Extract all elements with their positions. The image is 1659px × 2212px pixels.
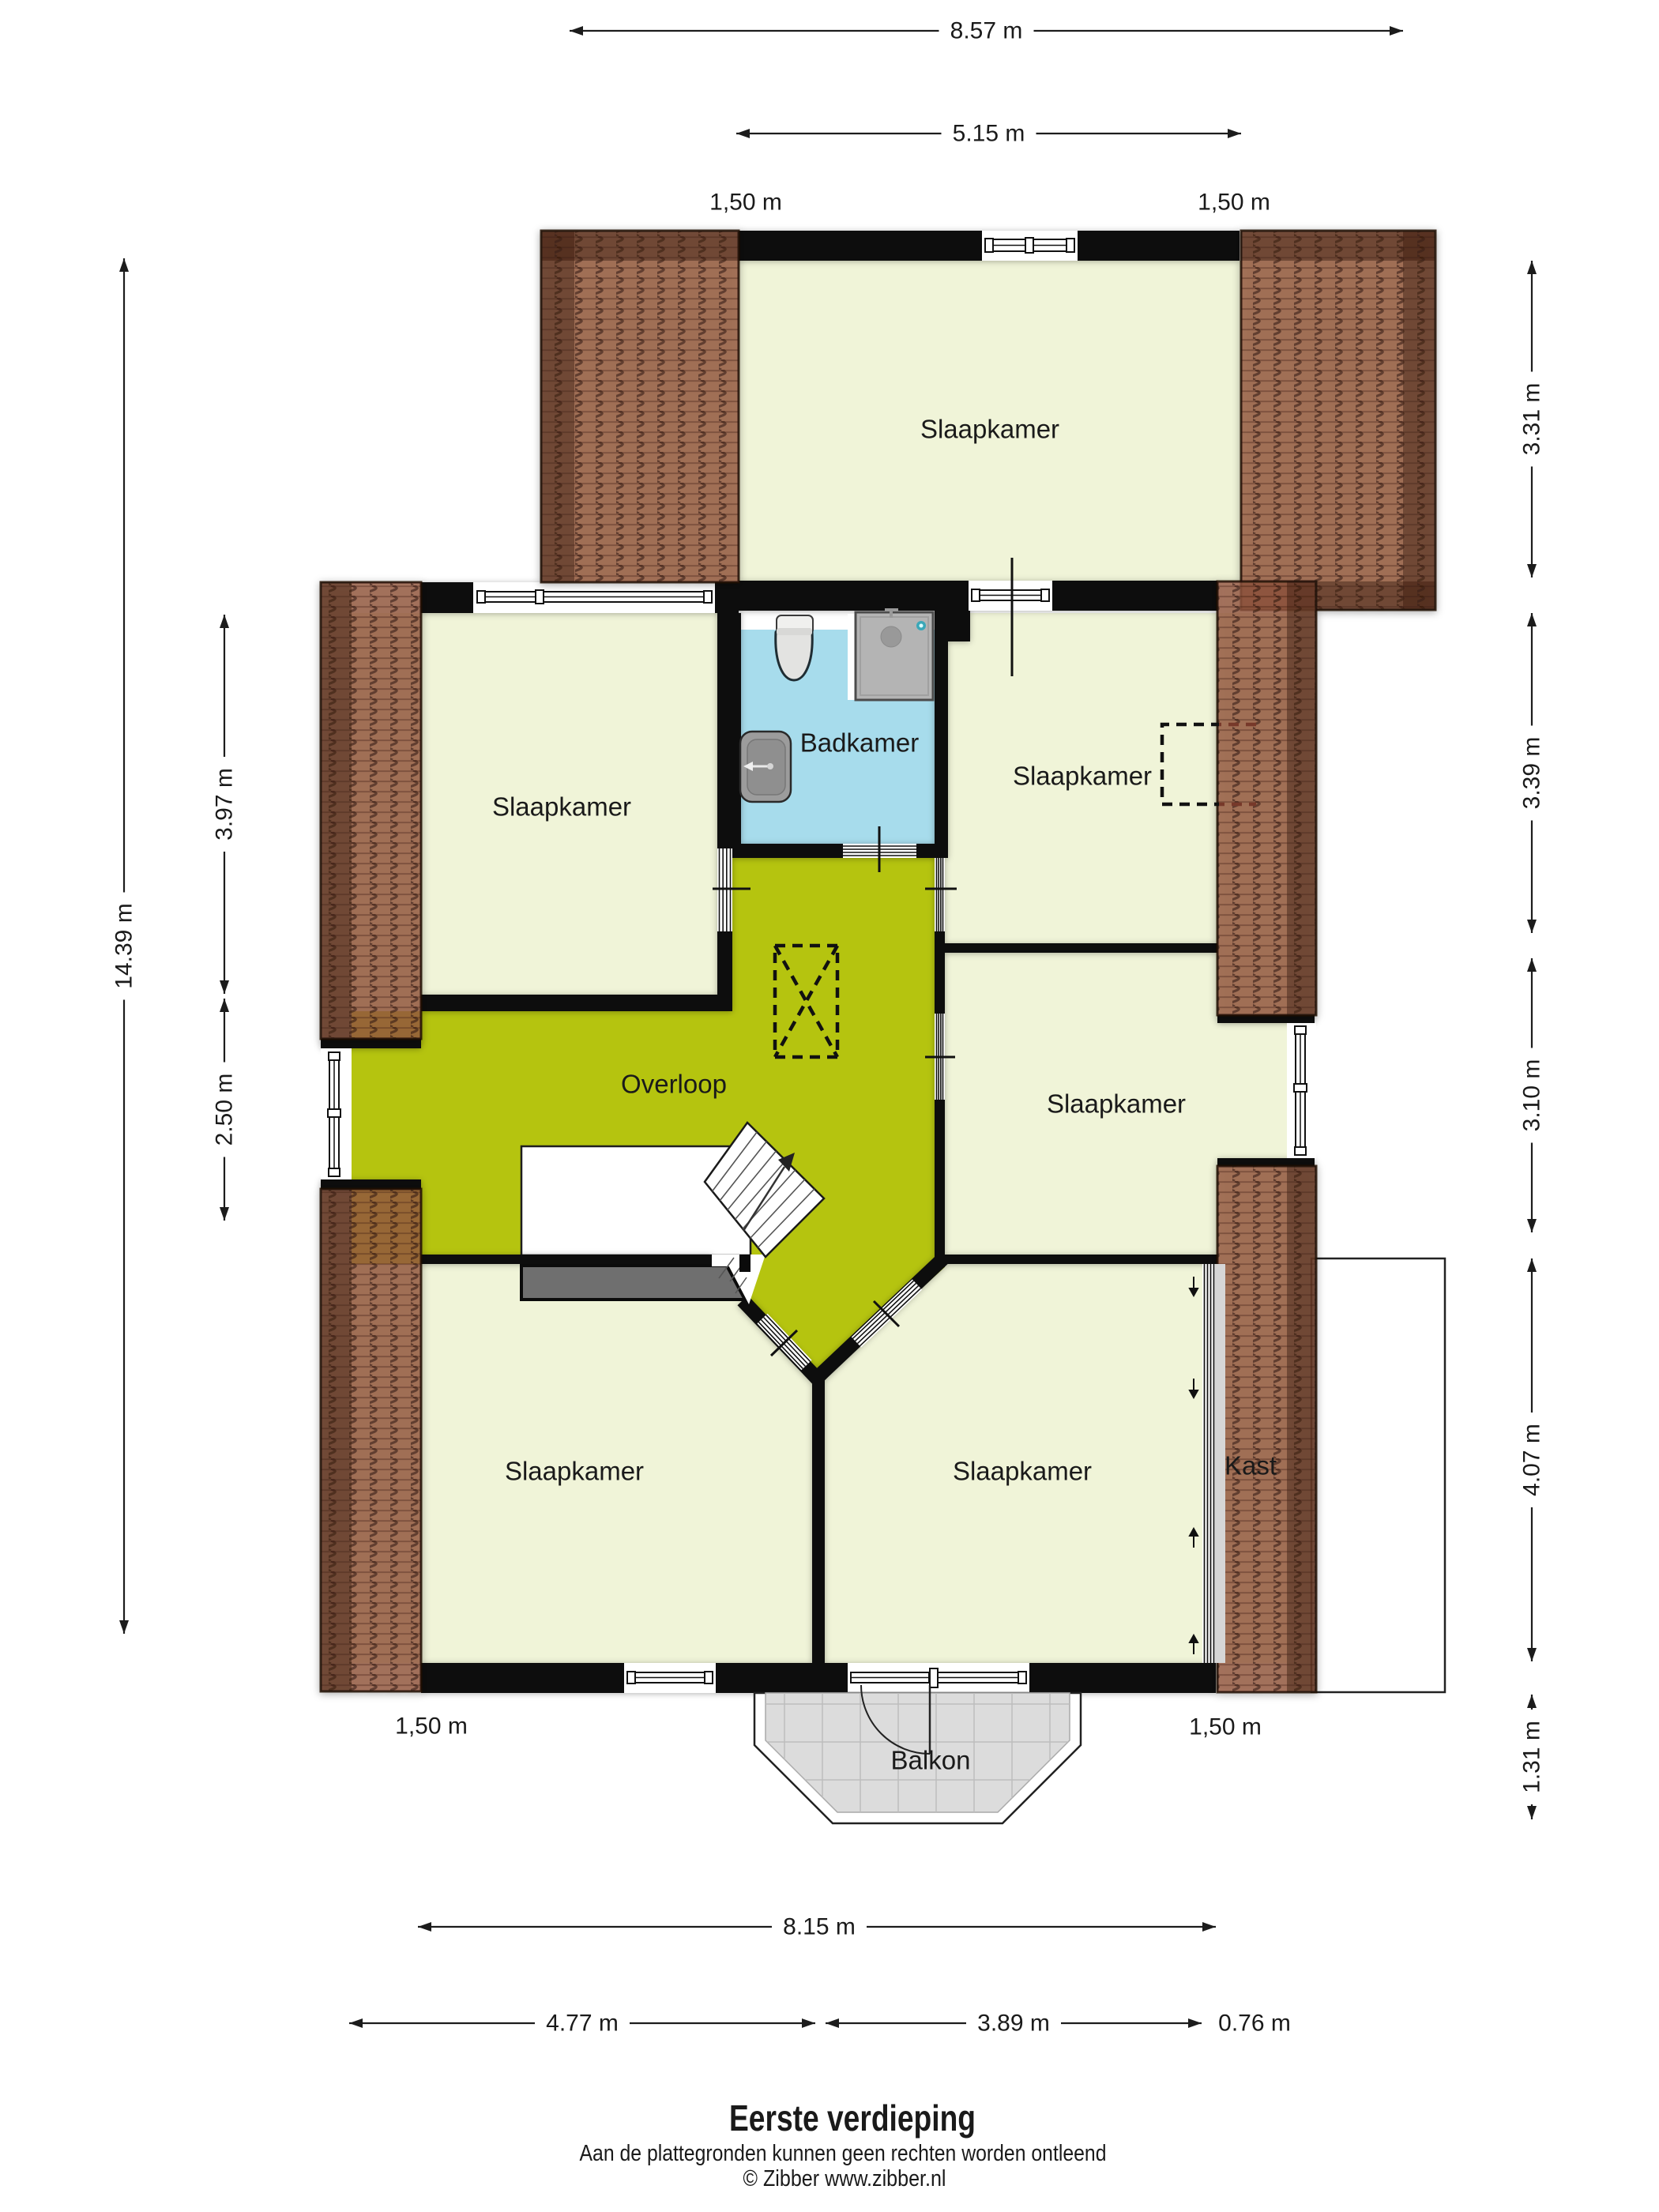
svg-text:3.89 m: 3.89 m [977, 2011, 1050, 2037]
svg-text:3.31 m: 3.31 m [1519, 383, 1545, 456]
svg-text:Slaapkamer: Slaapkamer [1013, 762, 1152, 791]
svg-text:Kast: Kast [1224, 1451, 1277, 1480]
svg-text:1.31 m: 1.31 m [1519, 1721, 1545, 1793]
svg-text:0.76 m: 0.76 m [1218, 2011, 1291, 2037]
svg-text:3.39 m: 3.39 m [1519, 737, 1545, 810]
svg-text:Aan de plattegronden kunnen ge: Aan de plattegronden kunnen geen rechten… [580, 2141, 1107, 2166]
svg-text:Overloop: Overloop [621, 1070, 727, 1099]
svg-text:Slaapkamer: Slaapkamer [505, 1457, 644, 1486]
svg-text:4.77 m: 4.77 m [546, 2011, 619, 2037]
svg-text:2.50 m: 2.50 m [212, 1074, 238, 1146]
svg-text:1,50 m: 1,50 m [1198, 190, 1270, 216]
svg-text:Slaapkamer: Slaapkamer [492, 792, 631, 822]
svg-text:14.39 m: 14.39 m [111, 903, 137, 988]
svg-text:5.15 m: 5.15 m [953, 121, 1025, 147]
svg-text:8.15 m: 8.15 m [783, 1914, 856, 1940]
svg-text:3.10 m: 3.10 m [1519, 1059, 1545, 1132]
svg-text:Slaapkamer: Slaapkamer [953, 1457, 1092, 1486]
svg-text:Badkamer: Badkamer [800, 728, 919, 758]
svg-text:8.57 m: 8.57 m [950, 18, 1023, 44]
svg-text:Slaapkamer: Slaapkamer [1047, 1089, 1186, 1119]
svg-text:Slaapkamer: Slaapkamer [920, 415, 1059, 444]
svg-text:Eerste verdieping: Eerste verdieping [729, 2097, 976, 2139]
svg-text:4.07 m: 4.07 m [1519, 1424, 1545, 1496]
svg-text:1,50 m: 1,50 m [395, 1714, 468, 1740]
svg-text:© Zibber www.zibber.nl: © Zibber www.zibber.nl [743, 2166, 946, 2191]
svg-text:1,50 m: 1,50 m [1189, 1714, 1262, 1740]
svg-text:Balkon: Balkon [891, 1746, 971, 1775]
svg-text:1,50 m: 1,50 m [709, 190, 782, 216]
svg-text:3.97 m: 3.97 m [212, 768, 238, 841]
